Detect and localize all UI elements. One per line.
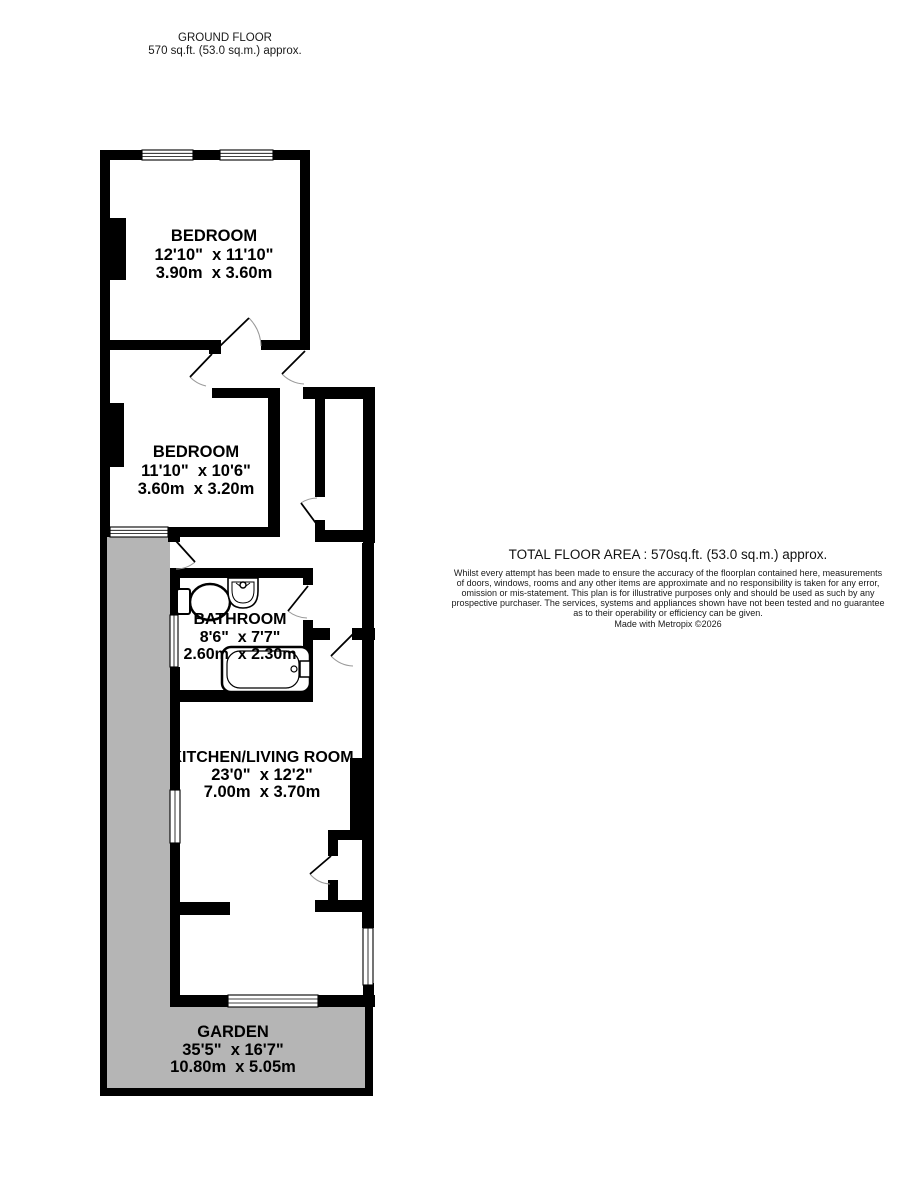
- bedroom1-imperial-label: 12'10" x 11'10": [155, 246, 274, 264]
- bedroom2-name-label: BEDROOM: [153, 443, 239, 461]
- window: [170, 615, 178, 667]
- bedroom2-metric-label: 3.60m x 3.20m: [138, 480, 255, 498]
- bedroom1-metric-label: 3.90m x 3.60m: [156, 264, 273, 282]
- bedroom1-name-label: BEDROOM: [171, 227, 257, 245]
- window: [170, 790, 180, 843]
- floorplan-canvas: GROUND FLOOR 570 sq.ft. (53.0 sq.m.) app…: [0, 0, 923, 1200]
- bathroom-name-label: BATHROOM: [193, 611, 286, 628]
- window: [142, 150, 193, 160]
- garden-name-label: GARDEN: [197, 1023, 269, 1041]
- window: [220, 150, 273, 160]
- labels-layer: GROUND FLOOR 570 sq.ft. (53.0 sq.m.) app…: [138, 32, 885, 1076]
- window: [228, 995, 318, 1007]
- disclaimer-line: Whilst every attempt has been made to en…: [454, 568, 883, 578]
- door-entrance: [282, 351, 305, 384]
- bathroom-metric-label: 2.60m x 2.30m: [184, 646, 297, 663]
- door-bedroom2: [190, 354, 212, 386]
- sink-icon: [228, 578, 258, 608]
- floorplan-page: GROUND FLOOR 570 sq.ft. (53.0 sq.m.) app…: [0, 0, 923, 1200]
- disclaimer-line: prospective purchaser. The services, sys…: [451, 598, 884, 608]
- door-bathroom: [288, 586, 308, 618]
- kitchen-name-label: KITCHEN/LIVING ROOM: [170, 749, 353, 766]
- bedroom2-imperial-label: 11'10" x 10'6": [141, 462, 251, 480]
- bathroom-imperial-label: 8'6" x 7'7": [200, 629, 281, 646]
- plan-subtitle: 570 sq.ft. (53.0 sq.m.) approx.: [148, 45, 301, 57]
- disclaimer-line: omission or mis-statement. This plan is …: [461, 588, 875, 598]
- door-bedroom1: [219, 318, 261, 347]
- disclaimer-line: of doors, windows, rooms and any other i…: [457, 578, 880, 588]
- door-hall-kitchen: [331, 633, 354, 666]
- kitchen-imperial-label: 23'0" x 12'2": [211, 766, 312, 784]
- garden-imperial-label: 35'5" x 16'7": [182, 1041, 283, 1059]
- plan-title: GROUND FLOOR: [178, 32, 272, 44]
- garden-metric-label: 10.80m x 5.05m: [170, 1058, 296, 1076]
- total-floor-area-label: TOTAL FLOOR AREA : 570sq.ft. (53.0 sq.m.…: [509, 547, 828, 562]
- credit-label: Made with Metropix ©2026: [614, 619, 721, 629]
- door-stairs-closet: [301, 498, 318, 526]
- window: [363, 928, 373, 985]
- door-cupboard: [310, 856, 331, 884]
- disclaimer-line: as to their operability or efficiency ca…: [573, 608, 762, 618]
- kitchen-metric-label: 7.00m x 3.70m: [204, 783, 321, 801]
- window: [110, 527, 168, 537]
- door-garden: [176, 541, 195, 569]
